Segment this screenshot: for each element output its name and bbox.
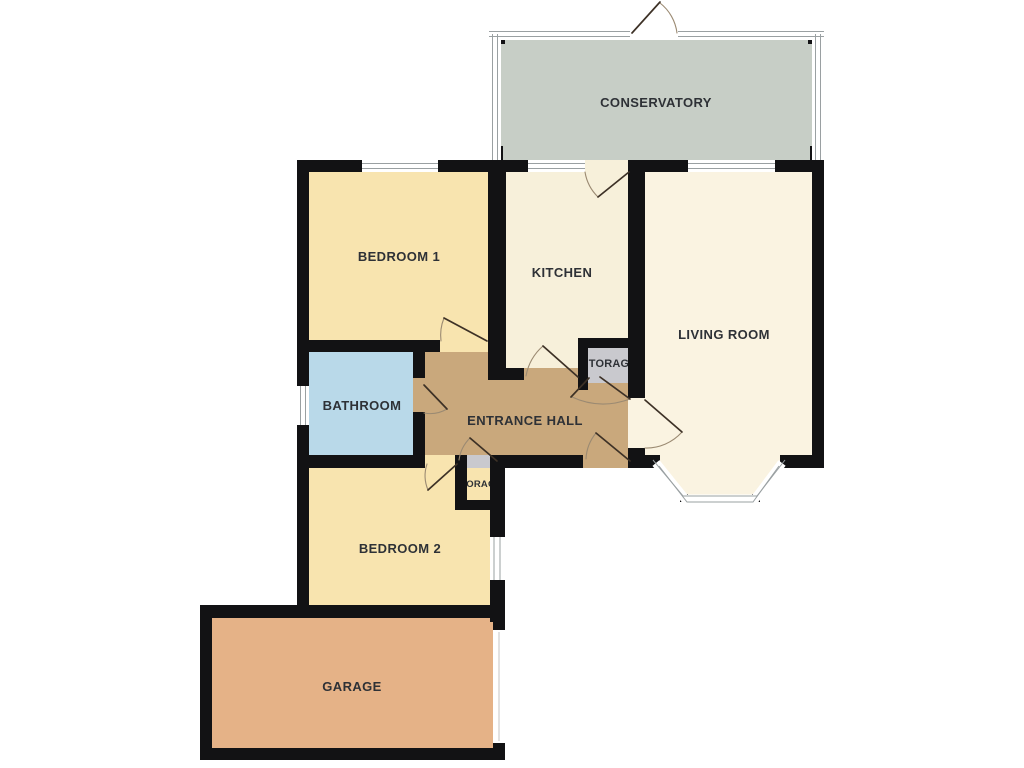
wall-segment <box>488 368 524 380</box>
bedroom2-window <box>490 537 505 580</box>
conservatory-frame-top-left <box>489 28 630 40</box>
conservatory-door-arc <box>660 3 677 33</box>
entrance-hall-floor-west <box>423 352 488 455</box>
living-room-door-gap <box>628 398 645 448</box>
storage-upper-label: TORAG <box>589 358 630 370</box>
floor-plan-page: TORAG TORAG <box>0 0 1024 768</box>
wall-segment <box>438 160 528 172</box>
entrance-hall-floor-mid <box>488 368 578 455</box>
conservatory-door-leaf <box>632 2 660 33</box>
wall-segment <box>200 605 505 618</box>
kitchen-window <box>528 160 585 172</box>
wall-segment <box>200 748 505 760</box>
wall-segment <box>200 605 212 760</box>
entrance-hall-label: ENTRANCE HALL <box>467 413 583 428</box>
garage-label: GARAGE <box>322 679 381 694</box>
wall-segment <box>297 160 309 386</box>
living-room-label: LIVING ROOM <box>678 327 770 342</box>
wall-segment <box>490 455 505 537</box>
wall-segment <box>297 425 309 618</box>
conservatory-label: CONSERVATORY <box>600 95 712 110</box>
bedroom2-label: BEDROOM 2 <box>359 541 441 556</box>
kitchen-label: KITCHEN <box>532 265 593 280</box>
wall-segment <box>628 160 645 398</box>
front-door-gap <box>583 455 628 468</box>
wall-segment <box>413 412 425 468</box>
living-room-window <box>688 160 775 172</box>
kitchen-conservatory-door-gap <box>585 160 630 172</box>
bedroom1-door-gap <box>440 340 488 352</box>
wall-segment <box>297 455 413 468</box>
wall-segment <box>505 455 583 468</box>
floor-plan-svg: TORAG TORAG <box>0 0 1024 768</box>
kitchen-floor <box>506 172 628 338</box>
bedroom1-label: BEDROOM 1 <box>358 249 440 264</box>
bathroom-window <box>297 386 309 425</box>
wall-segment <box>488 160 506 380</box>
bathroom-label: BATHROOM <box>323 398 402 413</box>
wall-segment <box>493 743 505 760</box>
conservatory-frame-top-right <box>678 28 824 40</box>
bedroom2-door-gap <box>425 455 457 468</box>
conservatory-frame-right <box>812 34 824 160</box>
wall-segment <box>493 605 505 630</box>
wall-segment <box>780 455 824 468</box>
bedroom1-window <box>362 160 438 172</box>
wall-segment <box>812 160 824 468</box>
wall-segment <box>413 347 425 378</box>
living-room-floor <box>645 172 812 455</box>
conservatory-frame-left <box>489 34 501 160</box>
bathroom-door-gap <box>413 378 425 412</box>
wall-segment <box>578 338 588 390</box>
